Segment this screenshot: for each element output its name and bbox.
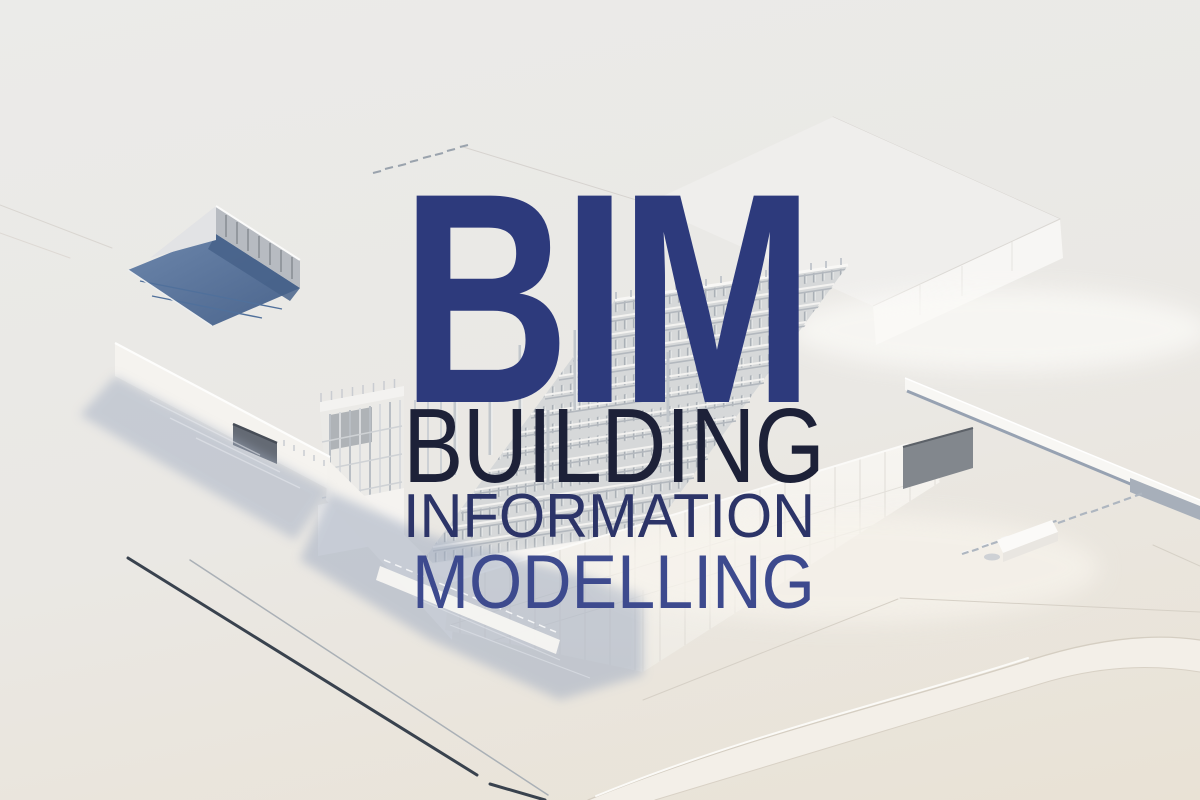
curved-road — [588, 637, 1200, 800]
text-overlay: BIM BUILDING INFORMATION MODELLING — [401, 131, 824, 625]
architectural-model-render: BIM BUILDING INFORMATION MODELLING — [0, 0, 1200, 800]
courtyard-opening — [128, 206, 300, 326]
bim-hero-image: BIM BUILDING INFORMATION MODELLING — [0, 0, 1200, 800]
subtitle-modelling: MODELLING — [412, 541, 815, 625]
